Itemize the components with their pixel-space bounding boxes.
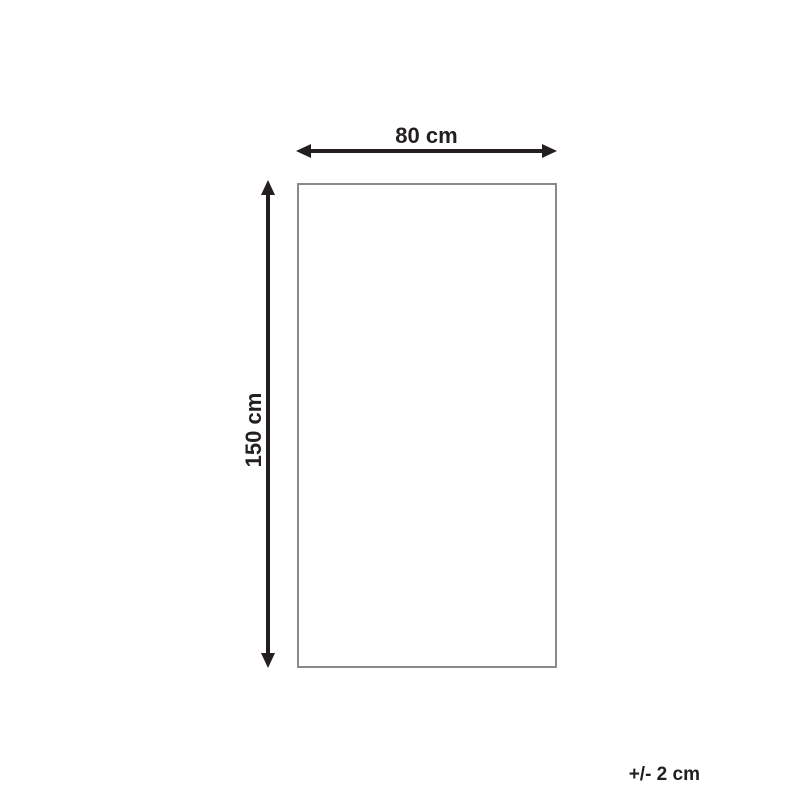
product-outline-rectangle <box>297 183 557 668</box>
width-dimension-label: 80 cm <box>296 125 557 147</box>
dimension-diagram: 80 cm 150 cm +/- 2 cm <box>0 0 800 800</box>
tolerance-label: +/- 2 cm <box>629 765 700 784</box>
width-arrow-line <box>308 149 545 153</box>
arrowhead-down-icon <box>261 653 275 668</box>
height-arrow-line <box>266 192 270 656</box>
height-dimension-label: 150 cm <box>243 360 265 500</box>
